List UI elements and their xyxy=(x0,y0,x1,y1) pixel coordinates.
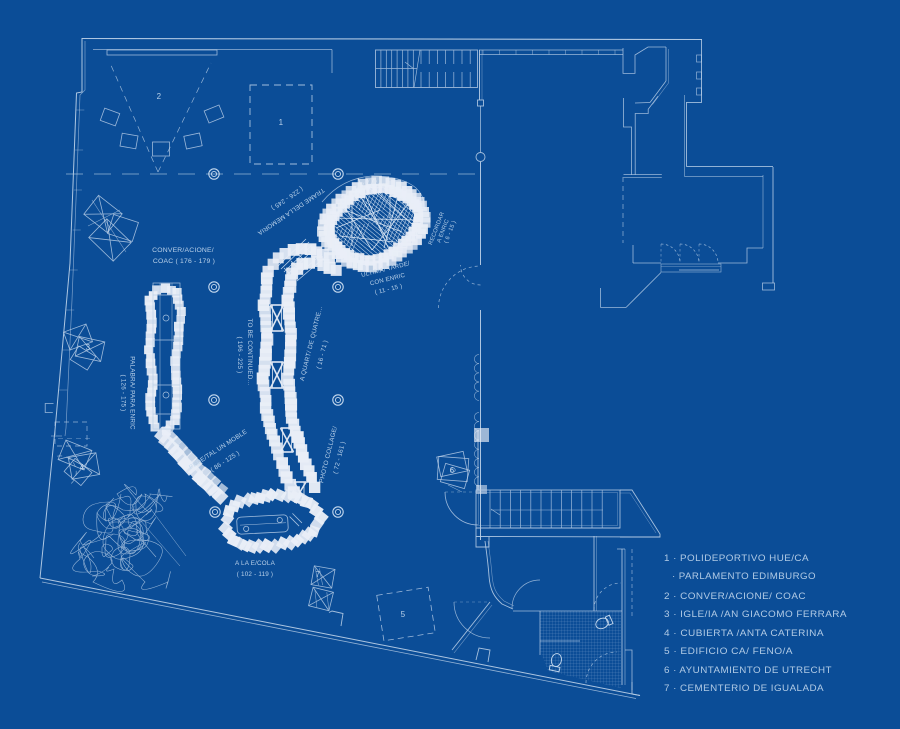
svg-text:2 · CONVER/ACIONE/ COAC: 2 · CONVER/ACIONE/ COAC xyxy=(664,591,806,601)
svg-text:1: 1 xyxy=(279,118,284,127)
svg-text:7: 7 xyxy=(316,570,321,579)
svg-text:5 · EDIFICIO CA/ FENO/A: 5 · EDIFICIO CA/ FENO/A xyxy=(664,646,793,656)
svg-text:3 · IGLE/IA /AN GIACOMO FERRAR: 3 · IGLE/IA /AN GIACOMO FERRARA xyxy=(664,609,847,619)
svg-text:( 196 - 225 ): ( 196 - 225 ) xyxy=(236,337,243,374)
svg-text:1 · POLIDEPORTIVO HUE/CA: 1 · POLIDEPORTIVO HUE/CA xyxy=(664,553,809,563)
svg-text:6: 6 xyxy=(450,466,455,475)
svg-text:5: 5 xyxy=(401,610,406,619)
svg-text:6 · AYUNTAMIENTO DE UTRECHT: 6 · AYUNTAMIENTO DE UTRECHT xyxy=(664,665,832,675)
svg-text:PALABRA/ PARA ENRIC: PALABRA/ PARA ENRIC xyxy=(129,356,136,430)
svg-text:( 102 - 119 ): ( 102 - 119 ) xyxy=(237,571,273,578)
svg-text:4 · CUBIERTA /ANTA CATERINA: 4 · CUBIERTA /ANTA CATERINA xyxy=(664,628,824,638)
svg-text:COAC ( 176 - 179 ): COAC ( 176 - 179 ) xyxy=(153,258,215,265)
svg-text:4: 4 xyxy=(80,463,85,472)
svg-text:CONVER/ACIONE/: CONVER/ACIONE/ xyxy=(152,247,214,254)
svg-text:7 · CEMENTERIO DE IGUALADA: 7 · CEMENTERIO DE IGUALADA xyxy=(664,683,824,693)
svg-text:TO BE CONTINUED...: TO BE CONTINUED... xyxy=(246,319,253,386)
svg-text:2: 2 xyxy=(157,92,162,101)
svg-text:3: 3 xyxy=(86,343,91,352)
svg-text:· PARLAMENTO EDIMBURGO: · PARLAMENTO EDIMBURGO xyxy=(672,571,816,581)
svg-text:A LA E/COLA: A LA E/COLA xyxy=(235,560,276,567)
svg-text:( 126 - 175 ): ( 126 - 175 ) xyxy=(120,375,127,412)
